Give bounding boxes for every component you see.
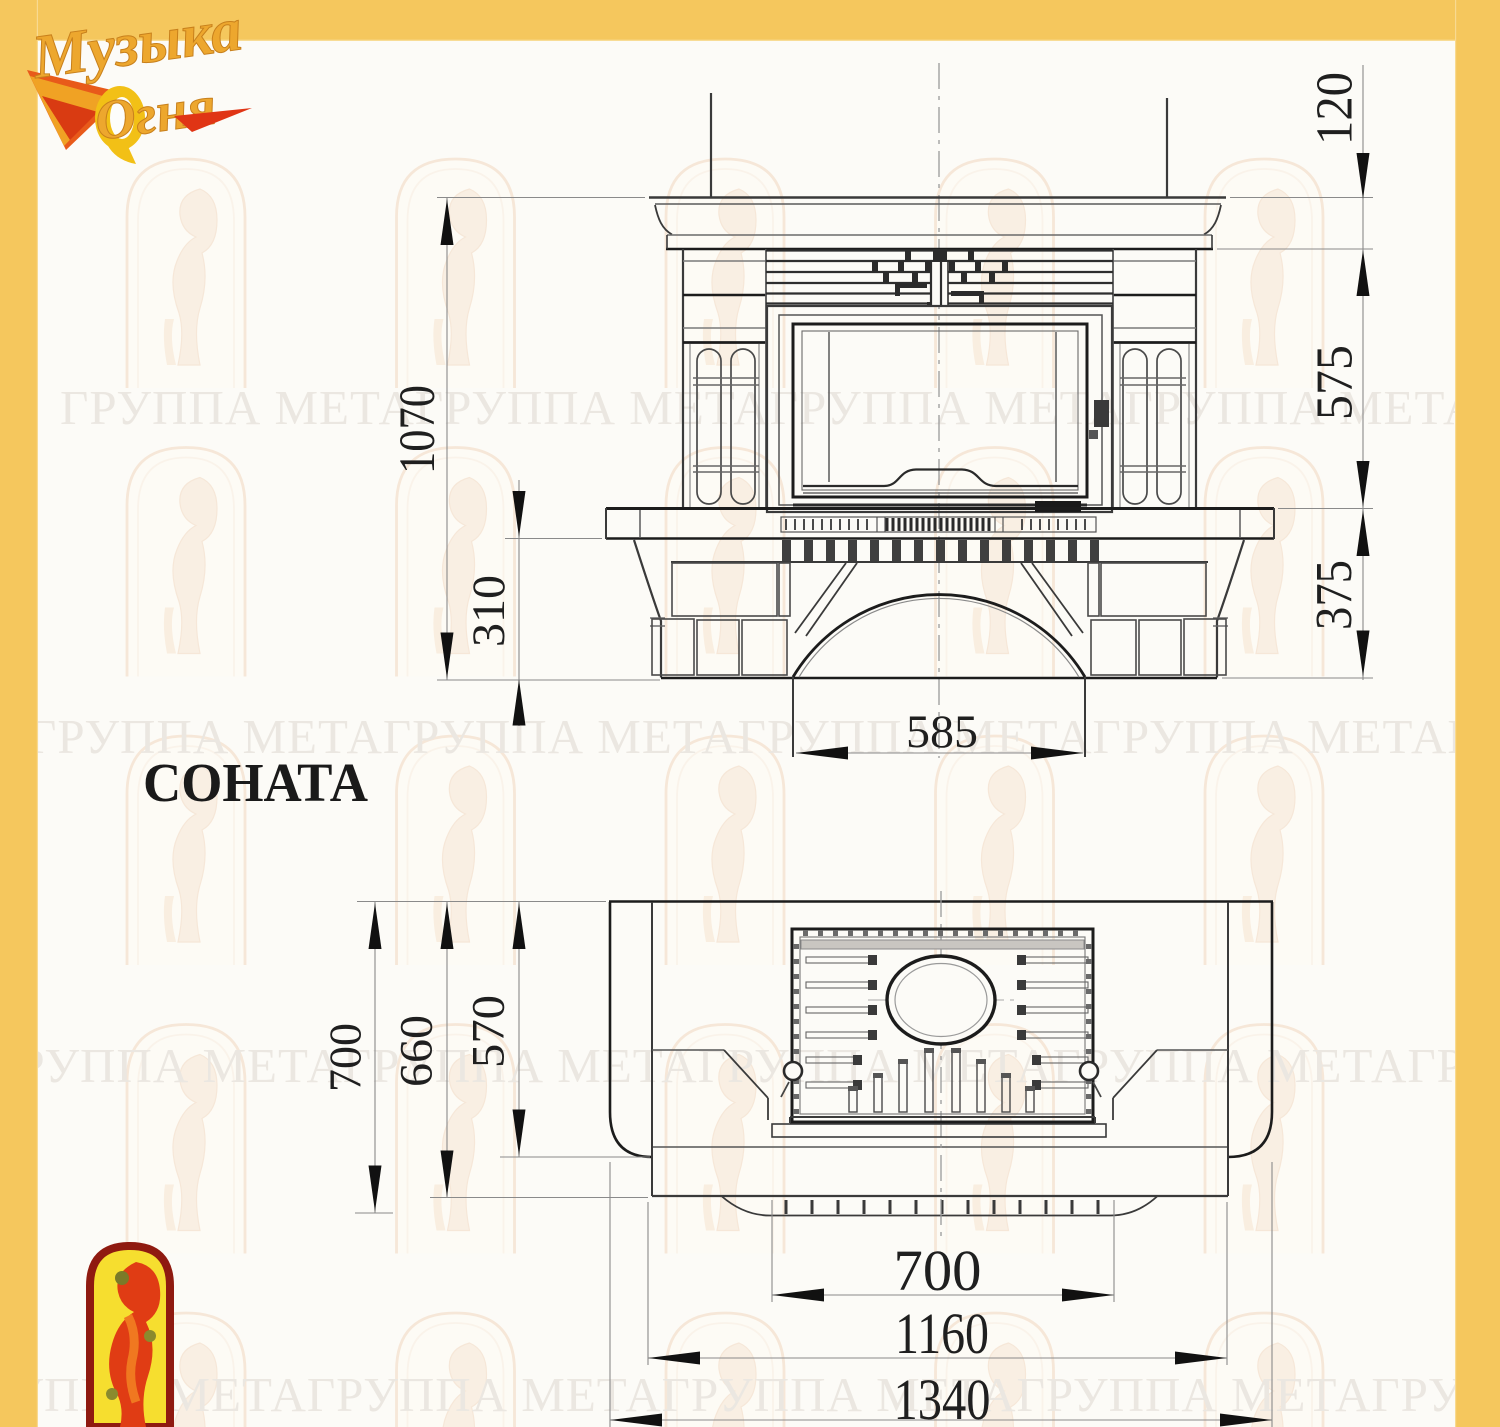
- svg-text:1070: 1070: [390, 385, 446, 474]
- svg-text:700: 700: [894, 1238, 982, 1303]
- svg-text:СОНАТА: СОНАТА: [143, 752, 368, 813]
- svg-text:375: 375: [1306, 560, 1363, 630]
- svg-text:575: 575: [1306, 345, 1363, 420]
- svg-text:700: 700: [320, 1023, 370, 1092]
- svg-text:570: 570: [462, 995, 514, 1068]
- svg-text:310: 310: [463, 575, 515, 647]
- svg-text:120: 120: [1306, 72, 1363, 145]
- svg-text:1160: 1160: [895, 1301, 989, 1366]
- svg-text:660: 660: [390, 1015, 442, 1087]
- svg-text:ГРУППА МЕТАГРУППА МЕТАГРУППА М: ГРУППА МЕТАГРУППА МЕТАГРУППА МЕТАГРУППА …: [60, 380, 1500, 435]
- svg-text:ГРУППА МЕТАГРУППА МЕТАГРУППА М: ГРУППА МЕТАГРУППА МЕТАГРУППА МЕТАГРУППА …: [0, 1038, 1500, 1093]
- svg-text:ГРУППА МЕТАГРУППА МЕТАГРУППА М: ГРУППА МЕТАГРУППА МЕТАГРУППА МЕТАГРУППА …: [0, 1367, 1500, 1422]
- svg-text:1340: 1340: [894, 1367, 991, 1427]
- svg-text:585: 585: [906, 706, 978, 758]
